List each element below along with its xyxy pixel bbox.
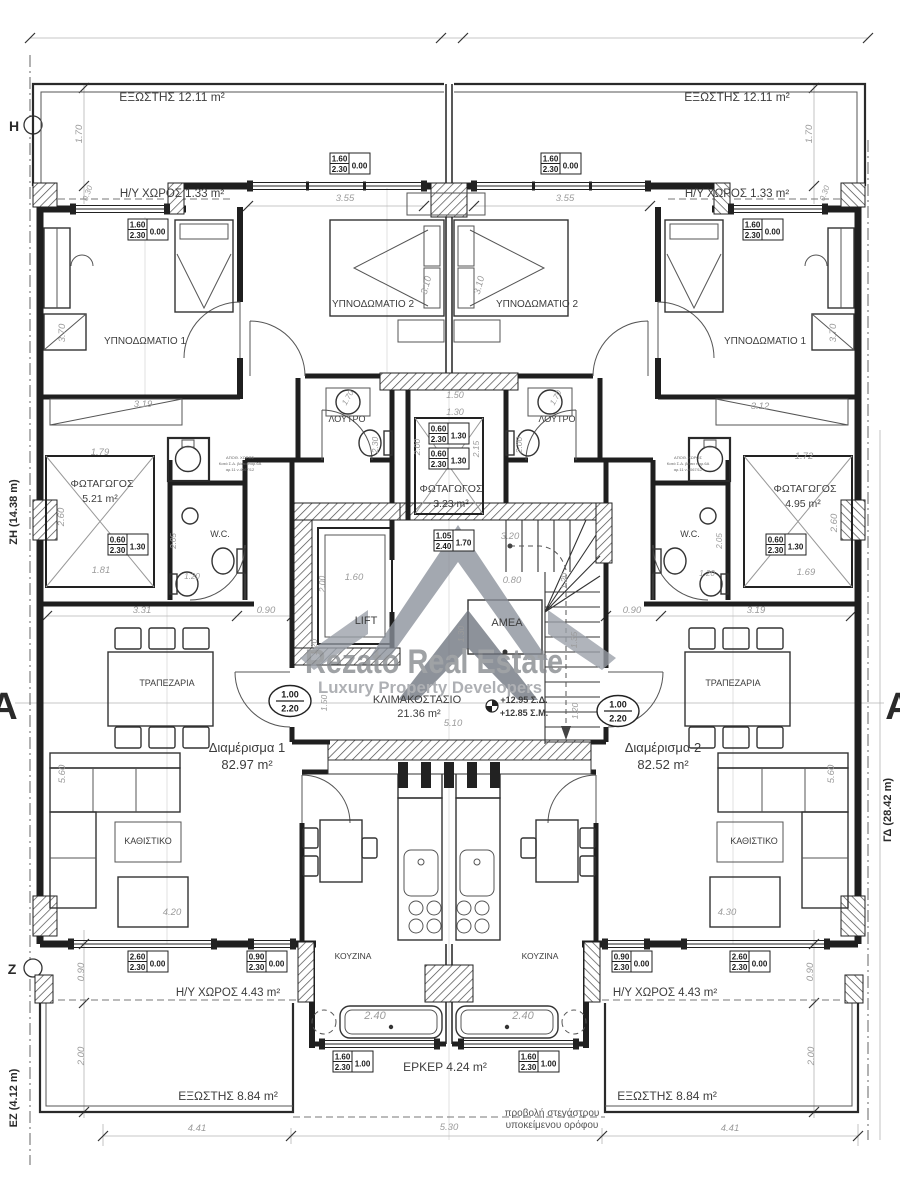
dimension-label: 1.50 bbox=[446, 390, 464, 400]
tag-width: 0.60 bbox=[431, 450, 447, 459]
dimension-label: 4.20 bbox=[163, 907, 182, 918]
tag-width: 0.60 bbox=[431, 425, 447, 434]
note-label: προβολή στεγάστρου bbox=[505, 1107, 600, 1119]
window-tag: 2.602.300.00 bbox=[128, 951, 168, 972]
tag-sill: 0.00 bbox=[634, 960, 650, 969]
dimension-label: 0.90 bbox=[805, 962, 816, 981]
dimension-label: 0.30 bbox=[818, 184, 832, 202]
dimension-label: 3.19 bbox=[134, 399, 153, 410]
room-label: ΚΑΘΙΣΤΙΚΟ bbox=[124, 836, 172, 846]
dimension-label: 1.50 bbox=[319, 694, 329, 711]
apartment-half-linework bbox=[33, 84, 446, 1112]
room-label: +12.95 Σ.Δ. bbox=[500, 695, 547, 705]
room-label: ΛΟΥΤΡΟ bbox=[538, 414, 575, 424]
dimension-label: 1.79 bbox=[91, 447, 110, 458]
tag-sill: 0.00 bbox=[352, 162, 368, 171]
dimension-label: 4.41 bbox=[721, 1123, 740, 1134]
dimension-label: 3.70 bbox=[57, 323, 68, 342]
axis-marker-z bbox=[24, 959, 42, 977]
floor-plan-page: Rezato Real Estate Luxury Property Devel… bbox=[0, 0, 900, 1200]
tag-width: 1.60 bbox=[745, 221, 761, 230]
tag-width: 1.00 bbox=[609, 700, 627, 710]
dimension-label: 2.60 bbox=[56, 507, 67, 527]
window-tag: 0.602.301.30 bbox=[766, 534, 806, 555]
regulation-note: ΑΠΟΘ. ΧΩΡΟΣ bbox=[674, 455, 702, 460]
regulation-note: Κατά Σ.Δ. βάσει παρ.6Α bbox=[219, 461, 262, 466]
regulation-note: ΑΠΟΘ. ΧΩΡΟΣ bbox=[226, 455, 254, 460]
central-core bbox=[292, 84, 612, 1117]
room-label: ΥΠΝΟΔΩΜΑΤΙΟ 1 bbox=[724, 336, 807, 347]
dimension-label: 5.10 bbox=[444, 718, 463, 729]
room-label: ΚΛΙΜΑΚΟΣΤΑΣΙΟ bbox=[373, 694, 462, 706]
dimension-label: 0.90 bbox=[623, 605, 642, 616]
stair-glazing bbox=[328, 760, 591, 788]
room-label: 82.97 m² bbox=[221, 757, 273, 772]
dimension-label: 3.12 bbox=[751, 401, 770, 412]
dimension-label: 2.05 bbox=[715, 533, 724, 550]
room-label: ΦΩΤΑΓΩΓΟΣ bbox=[774, 483, 837, 495]
dimension-label: 1.35 bbox=[569, 631, 579, 648]
room-label: ΕΞΩΣΤΗΣ 8.84 m² bbox=[617, 1089, 717, 1103]
tag-width: 1.00 bbox=[281, 690, 299, 700]
regulation-note: αρ.11 ν.4067/12 bbox=[226, 467, 255, 472]
tag-height: 2.20 bbox=[609, 714, 627, 724]
room-label: Η/Υ ΧΩΡΟΣ 4.43 m² bbox=[613, 987, 718, 999]
room-label: Διαμέρισμα 2 bbox=[625, 740, 702, 755]
tag-sill: 1.70 bbox=[456, 539, 472, 548]
windows bbox=[68, 181, 440, 1050]
tag-height: 2.30 bbox=[130, 231, 146, 240]
hatched-piers bbox=[33, 183, 314, 1003]
bedroom1-furniture bbox=[44, 220, 233, 425]
tag-sill: 1.00 bbox=[541, 1060, 557, 1069]
room-label: ΚΟΥΖΙΝΑ bbox=[335, 951, 372, 961]
window-tag: 0.902.300.00 bbox=[612, 951, 652, 972]
window-tag: 1.602.300.00 bbox=[128, 219, 168, 240]
dimension-label: 2.00 bbox=[76, 1046, 87, 1066]
dimension-label: 1.70 bbox=[74, 124, 85, 143]
room-label: ΛΟΥΤΡΟ bbox=[328, 414, 365, 424]
tag-width: 0.60 bbox=[768, 536, 784, 545]
room-label: ΕΞΩΣΤΗΣ 8.84 m² bbox=[178, 1089, 278, 1103]
room-label: ΤΡΑΠΕΖΑΡΙΑ bbox=[705, 678, 760, 688]
tag-width: 2.60 bbox=[130, 953, 146, 962]
note-label: υποκείμενου ορόφου bbox=[506, 1119, 599, 1131]
dimension-label: 1.30 bbox=[456, 625, 466, 642]
room-label: ΕΞΩΣΤΗΣ 12.11 m² bbox=[684, 90, 789, 104]
dimension-label: 2.40 bbox=[511, 1010, 534, 1022]
dimension-label: 3.20 bbox=[501, 531, 520, 542]
axis-label: Z bbox=[8, 961, 17, 977]
stair-direction-arrow bbox=[561, 726, 571, 740]
room-label: Η/Υ ΧΩΡΟΣ 4.43 m² bbox=[176, 987, 281, 999]
room-label: ΚΑΘΙΣΤΙΚΟ bbox=[730, 836, 778, 846]
room-label: ΤΡΑΠΕΖΑΡΙΑ bbox=[139, 678, 194, 688]
tag-height: 2.30 bbox=[130, 963, 146, 972]
tag-sill: 1.30 bbox=[130, 543, 146, 552]
regulation-note: αρ.11 ν.4067/12 bbox=[674, 467, 703, 472]
axis-label: ΓΔ (28.42 m) bbox=[882, 778, 894, 842]
window-tag: 0.602.301.30 bbox=[108, 534, 148, 555]
room-label: ΥΠΝΟΔΩΜΑΤΙΟ 1 bbox=[104, 336, 187, 347]
room-label: 21.36 m² bbox=[397, 708, 441, 720]
axis-label: A bbox=[0, 686, 18, 728]
dimension-label: 5.60 bbox=[57, 764, 68, 783]
dimension-label: 1.81 bbox=[92, 565, 111, 576]
tag-sill: 1.30 bbox=[788, 543, 804, 552]
tag-sill: 1.30 bbox=[451, 457, 467, 466]
room-label: ΕΡΚΕΡ 4.24 m² bbox=[403, 1060, 487, 1074]
tag-sill: 0.00 bbox=[269, 960, 285, 969]
dimension-label: 1.20 bbox=[699, 569, 715, 578]
dimension-label: 5.60 bbox=[826, 764, 837, 783]
door-tag: 1.002.20 bbox=[597, 696, 639, 727]
tag-width: 1.60 bbox=[332, 155, 348, 164]
dimension-label: 1.30 bbox=[446, 407, 464, 417]
tag-height: 2.30 bbox=[431, 435, 447, 444]
watermark-title: Rezato Real Estate bbox=[305, 643, 563, 681]
dimension-label: 3.31 bbox=[133, 605, 152, 616]
dimension-label: 3.10 bbox=[419, 274, 435, 295]
dimension-label: 2.40 bbox=[363, 1010, 386, 1022]
tag-sill: 1.00 bbox=[355, 1060, 371, 1069]
tag-height: 2.20 bbox=[281, 704, 299, 714]
door-tag: 1.002.20 bbox=[269, 686, 311, 717]
tag-sill: 0.00 bbox=[752, 960, 768, 969]
tag-height: 2.30 bbox=[768, 546, 784, 555]
axis-label: A bbox=[885, 686, 900, 728]
dimension-label: 3.70 bbox=[828, 323, 839, 342]
window-tag: 0.602.301.30 bbox=[429, 423, 469, 444]
dimension-label: 5.30 bbox=[440, 1122, 459, 1133]
dimension-label: 2.00 bbox=[317, 575, 327, 593]
tag-height: 2.30 bbox=[335, 1063, 351, 1072]
tag-height: 2.30 bbox=[521, 1063, 537, 1072]
window-tag: 1.602.301.00 bbox=[519, 1051, 559, 1072]
room-label: Η/Υ ΧΩΡΟΣ 1.33 m² bbox=[120, 188, 225, 200]
tag-width: 1.60 bbox=[130, 221, 146, 230]
top-balcony-parapet bbox=[33, 84, 444, 186]
tag-sill: 0.00 bbox=[563, 162, 579, 171]
tag-height: 2.30 bbox=[110, 546, 126, 555]
dimension-label: 1.69 bbox=[797, 567, 816, 578]
tag-height: 2.30 bbox=[431, 460, 447, 469]
window-tag: 1.052.401.70 bbox=[434, 530, 474, 551]
dimension-label: 2.00 bbox=[412, 438, 422, 456]
dimension-label: 1.20 bbox=[184, 572, 200, 581]
room-label: ΑΜΕΑ bbox=[491, 617, 523, 629]
tag-width: 1.60 bbox=[335, 1053, 351, 1062]
room-label: ΥΠΝΟΔΩΜΑΤΙΟ 2 bbox=[332, 299, 415, 310]
tag-width: 0.90 bbox=[249, 953, 265, 962]
room-label: LIFT bbox=[355, 615, 378, 627]
dimension-label: 3.55 bbox=[556, 193, 575, 204]
window-tag: 1.602.300.00 bbox=[743, 219, 783, 240]
dimension-label: 2.15 bbox=[471, 440, 481, 458]
window-tag: 2.602.300.00 bbox=[730, 951, 770, 972]
tag-sill: 1.30 bbox=[451, 432, 467, 441]
level-marker bbox=[486, 700, 498, 712]
axis-label: H bbox=[9, 118, 19, 134]
dimension-label: 1.72 bbox=[795, 451, 814, 462]
tag-height: 2.30 bbox=[543, 165, 559, 174]
room-label: ΦΩΤΑΓΩΓΟΣ bbox=[71, 478, 134, 490]
tag-width: 1.60 bbox=[521, 1053, 537, 1062]
dimension-label: 1.20 bbox=[559, 572, 569, 589]
dimension-label: 1.70 bbox=[804, 124, 815, 143]
tag-height: 2.30 bbox=[249, 963, 265, 972]
dimension-label: 4.41 bbox=[188, 1123, 207, 1134]
tag-height: 2.40 bbox=[436, 542, 452, 551]
dimension-label: 1.60 bbox=[345, 572, 364, 583]
room-label: 3.23 m² bbox=[433, 498, 469, 510]
tag-width: 1.05 bbox=[436, 532, 452, 541]
room-label: 82.52 m² bbox=[637, 757, 689, 772]
room-label: +12.85 Σ.Μ. bbox=[500, 708, 548, 718]
dining-table bbox=[108, 628, 213, 748]
floor-plan-drawing: Rezato Real Estate Luxury Property Devel… bbox=[0, 0, 900, 1200]
window-tag: 1.602.300.00 bbox=[541, 153, 581, 174]
tag-width: 1.60 bbox=[543, 155, 559, 164]
window-tag: 0.902.300.00 bbox=[247, 951, 287, 972]
dimension-label: 1.20 bbox=[570, 702, 580, 719]
axis-label: ΕΖ (4.12 m) bbox=[8, 1068, 20, 1127]
room-label: 5.21 m² bbox=[82, 493, 118, 505]
apartment-half-mirrored bbox=[452, 84, 865, 1112]
dimension-label: 0.80 bbox=[503, 575, 522, 586]
room-label: ΕΞΩΣΤΗΣ 12.11 m² bbox=[119, 90, 224, 104]
tag-width: 2.60 bbox=[732, 953, 748, 962]
dimension-label: 4.30 bbox=[718, 907, 737, 918]
window-tag: 1.602.301.00 bbox=[333, 1051, 373, 1072]
tag-sill: 0.00 bbox=[765, 228, 781, 237]
dimension-label: 2.60 bbox=[829, 513, 840, 533]
room-label: Η/Υ ΧΩΡΟΣ 1.33 m² bbox=[685, 188, 790, 200]
tag-width: 0.90 bbox=[614, 953, 630, 962]
window-tag: 1.602.300.00 bbox=[330, 153, 370, 174]
dimension-label: 3.55 bbox=[336, 193, 355, 204]
room-label: ΚΟΥΖΙΝΑ bbox=[522, 951, 559, 961]
room-label: ΦΩΤΑΓΩΓΟΣ bbox=[420, 483, 483, 495]
tag-height: 2.30 bbox=[332, 165, 348, 174]
tag-sill: 0.00 bbox=[150, 228, 166, 237]
dimension-label: 1.20 bbox=[309, 638, 319, 655]
dimension-label: 3.19 bbox=[747, 605, 766, 616]
kitchen-fixtures bbox=[303, 772, 442, 940]
tag-width: 0.60 bbox=[110, 536, 126, 545]
room-label: W.C. bbox=[210, 529, 230, 539]
tag-height: 2.30 bbox=[745, 231, 761, 240]
dimension-label: 2.30 bbox=[370, 436, 380, 454]
tag-height: 2.30 bbox=[614, 963, 630, 972]
axis-label: ΖΗ (14.38 m) bbox=[8, 479, 20, 545]
dimension-label: 2.00 bbox=[514, 436, 524, 454]
tag-sill: 0.00 bbox=[150, 960, 166, 969]
dimension-label: 0.90 bbox=[257, 605, 276, 616]
regulation-note: Κατά Σ.Δ. βάσει παρ.6Α bbox=[667, 461, 710, 466]
room-label: Διαμέρισμα 1 bbox=[209, 740, 286, 755]
room-label: W.C. bbox=[680, 529, 700, 539]
window-tag: 0.602.301.30 bbox=[429, 448, 469, 469]
dimension-label: 2.00 bbox=[806, 1046, 817, 1066]
tag-height: 2.30 bbox=[732, 963, 748, 972]
room-label: ΥΠΝΟΔΩΜΑΤΙΟ 2 bbox=[496, 299, 579, 310]
dimension-label: 2.05 bbox=[169, 533, 178, 550]
room-label: 4.95 m² bbox=[785, 498, 821, 510]
dimension-label: 0.90 bbox=[76, 962, 87, 981]
